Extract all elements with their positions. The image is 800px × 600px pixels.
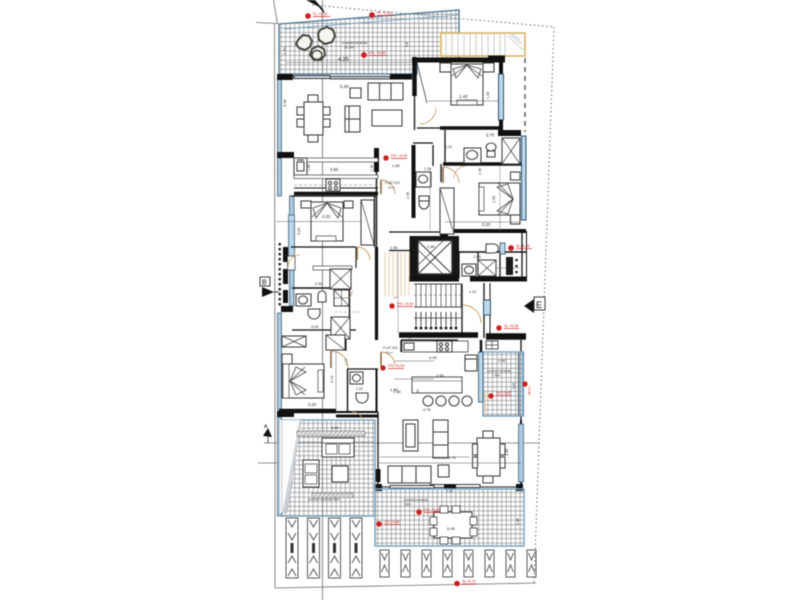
svg-text:1.10: 1.10	[469, 290, 476, 294]
svg-text:65m²: 65m²	[388, 186, 395, 190]
svg-text:1.10: 1.10	[344, 358, 348, 365]
svg-text:2.44: 2.44	[516, 518, 520, 525]
svg-text:2.70: 2.70	[486, 133, 495, 138]
svg-text:covered veranda: covered veranda	[487, 369, 511, 373]
svg-text:2.70: 2.70	[282, 46, 287, 55]
svg-text:covered veranda 16m²: covered veranda 16m²	[308, 498, 340, 502]
svg-text:6.30: 6.30	[340, 84, 349, 89]
svg-text:1.50: 1.50	[390, 245, 399, 250]
svg-text:1.40: 1.40	[459, 94, 468, 99]
svg-text:2.45: 2.45	[406, 192, 410, 199]
svg-text:3.8: 3.8	[405, 42, 409, 47]
svg-text:4.25: 4.25	[338, 57, 349, 63]
svg-text:3.20: 3.20	[308, 402, 317, 407]
svg-text:1.50: 1.50	[492, 196, 496, 203]
svg-text:2.40: 2.40	[315, 282, 322, 286]
svg-text:34m²: 34m²	[404, 503, 411, 507]
svg-text:1.40: 1.40	[478, 168, 482, 175]
svg-text:+5.85: +5.85	[527, 386, 531, 395]
svg-text:1.40: 1.40	[370, 164, 374, 171]
svg-text:3.30: 3.30	[505, 449, 509, 456]
svg-text:SL+6.35: SL+6.35	[516, 244, 530, 248]
svg-text:1.10: 1.10	[356, 387, 363, 391]
svg-text:2.45: 2.45	[512, 383, 516, 389]
svg-text:3.40: 3.40	[282, 98, 287, 107]
svg-text:6.95: 6.95	[447, 526, 456, 531]
svg-text:1.10: 1.10	[408, 332, 412, 339]
svg-text:CFL+5.80: CFL+5.80	[384, 520, 400, 524]
svg-text:4.70: 4.70	[423, 407, 432, 412]
svg-text:PL +9.50: PL +9.50	[313, 12, 327, 16]
svg-text:FFL +8.85: FFL +8.85	[369, 51, 385, 55]
svg-text:FFL +6.00: FFL +6.00	[397, 302, 413, 306]
svg-text:1.95: 1.95	[473, 254, 482, 259]
svg-text:SL+5.70: SL+5.70	[462, 580, 476, 584]
svg-text:3.20: 3.20	[482, 222, 491, 227]
svg-text:1.80: 1.80	[427, 244, 436, 249]
svg-text:3.20: 3.20	[311, 325, 318, 329]
svg-text:B: B	[262, 280, 267, 287]
svg-text:1.90: 1.90	[498, 359, 505, 363]
svg-text:62m²: 62m²	[386, 351, 393, 355]
svg-text:7.10: 7.10	[446, 490, 453, 494]
svg-text:1.30: 1.30	[486, 92, 490, 99]
svg-text:FFL +5.85: FFL +5.85	[424, 508, 440, 512]
svg-text:18.3m²: 18.3m²	[344, 46, 355, 50]
svg-text:1.65: 1.65	[392, 163, 401, 168]
svg-text:3.00: 3.00	[429, 355, 438, 360]
svg-text:7.9m²: 7.9m²	[492, 374, 500, 378]
svg-text:FFL +6.00: FFL +6.00	[388, 364, 404, 368]
svg-text:2.60: 2.60	[330, 167, 339, 172]
svg-text:covered veranda: covered veranda	[404, 498, 428, 502]
svg-text:FLAT 202: FLAT 202	[383, 346, 398, 350]
svg-text:4.75: 4.75	[448, 455, 457, 460]
svg-text:3.20: 3.20	[297, 228, 301, 235]
svg-text:3.10: 3.10	[330, 376, 334, 383]
svg-text:3.20: 3.20	[322, 214, 331, 219]
svg-text:3.60: 3.60	[331, 425, 340, 430]
svg-text:covered veranda: covered veranda	[342, 41, 367, 45]
svg-text:SL +6.35: SL +6.35	[504, 324, 518, 328]
svg-text:FFL +6.00: FFL +6.00	[391, 154, 407, 158]
svg-text:PL +9.20: PL +9.20	[377, 11, 391, 15]
svg-text:2.50: 2.50	[436, 373, 445, 378]
svg-text:1.10: 1.10	[445, 145, 452, 149]
svg-text:E: E	[536, 300, 542, 310]
svg-text:1.40: 1.40	[307, 164, 311, 171]
svg-text:1.60: 1.60	[393, 389, 402, 394]
svg-text:WC+5.85: WC+5.85	[496, 391, 511, 395]
svg-text:90: 90	[416, 389, 420, 393]
svg-text:FLAT 203: FLAT 203	[385, 181, 400, 185]
